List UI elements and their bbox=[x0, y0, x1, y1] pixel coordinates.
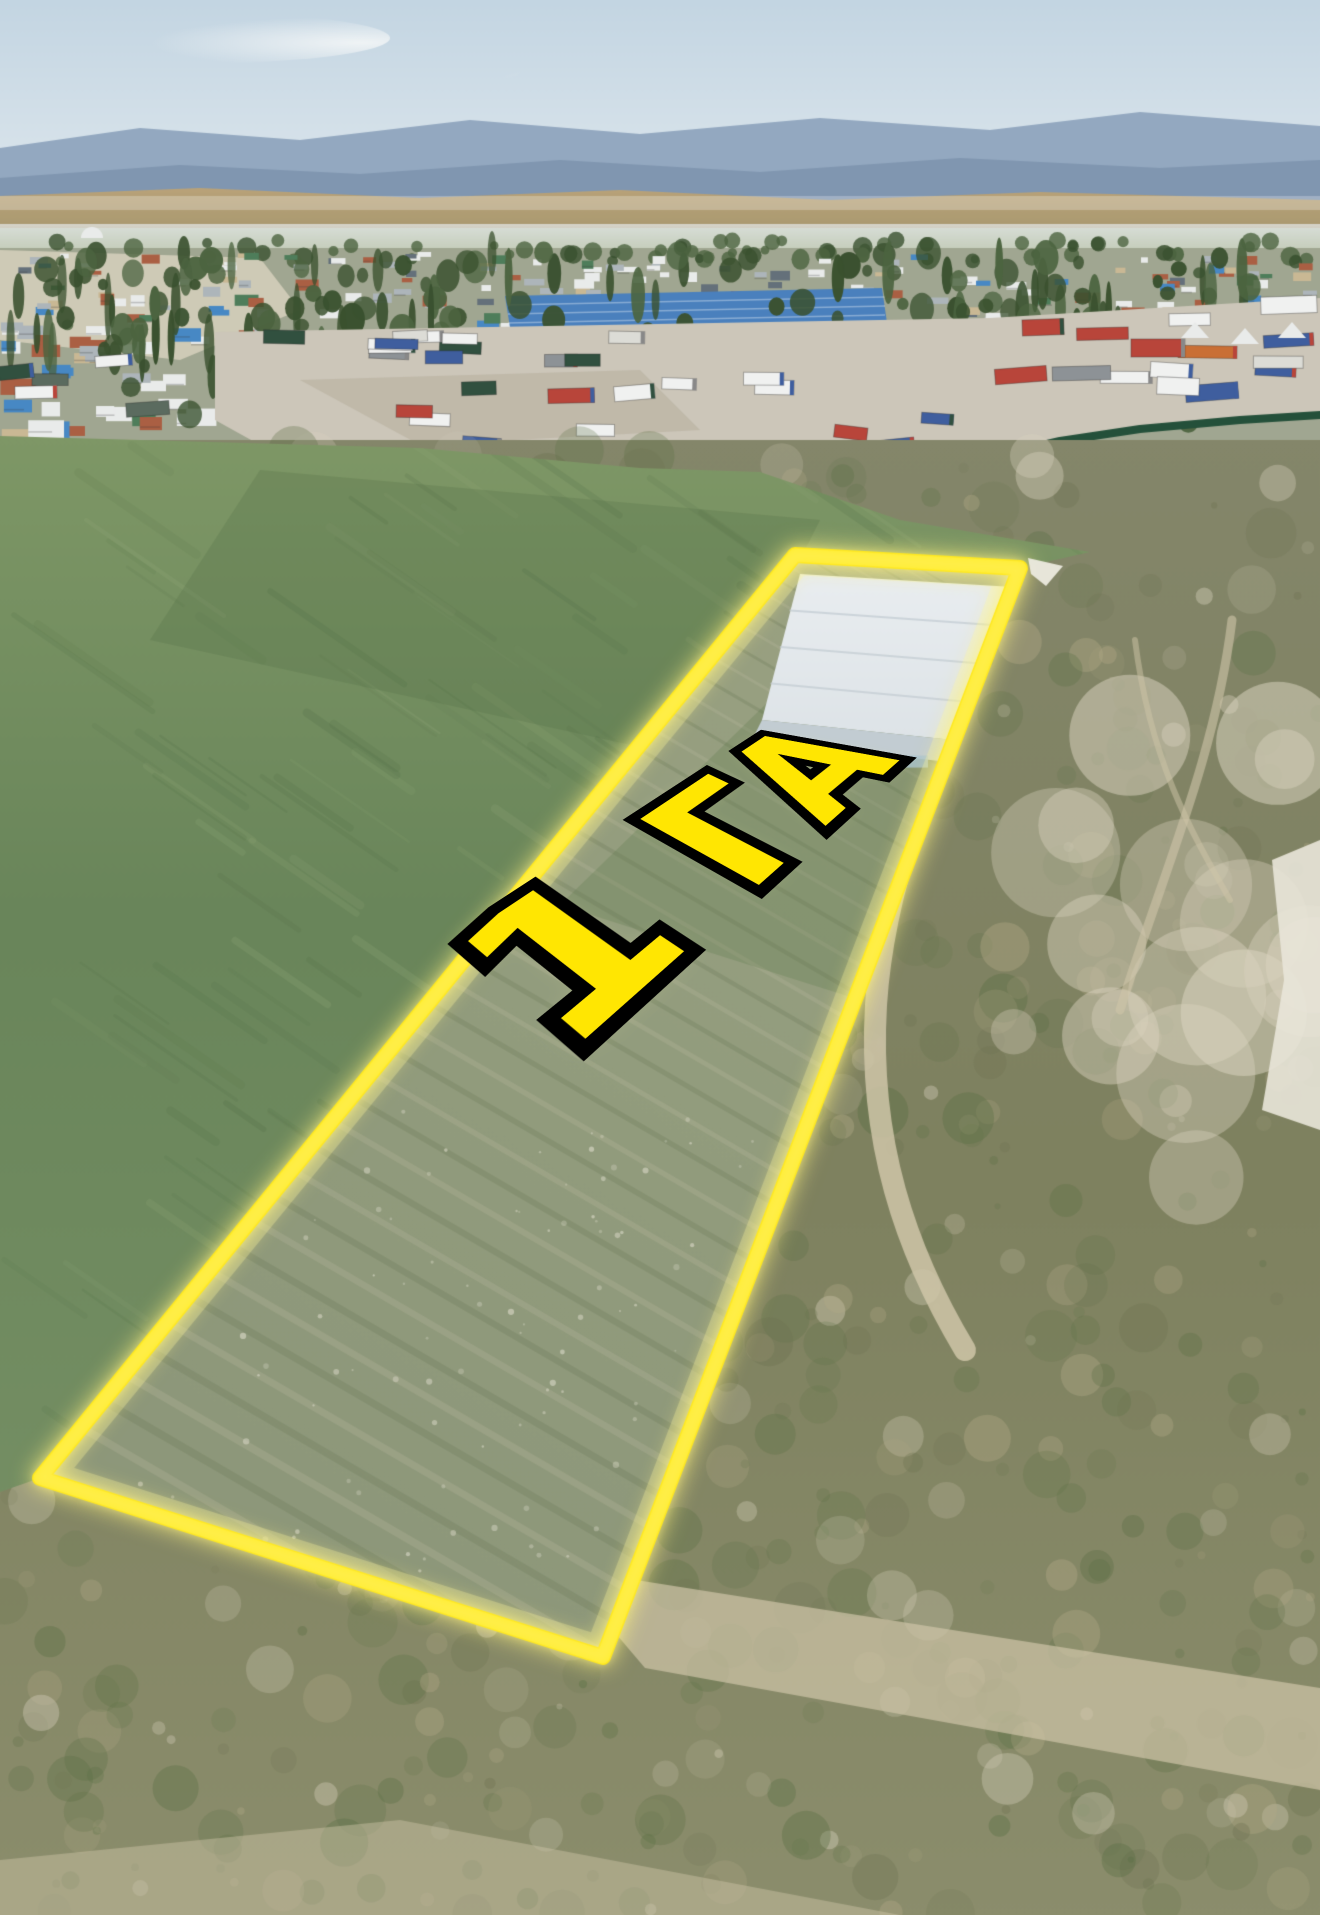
photo-canvas bbox=[0, 0, 1320, 1915]
aerial-drone-photo: 1 ГА 1 ГА bbox=[0, 0, 1320, 1915]
